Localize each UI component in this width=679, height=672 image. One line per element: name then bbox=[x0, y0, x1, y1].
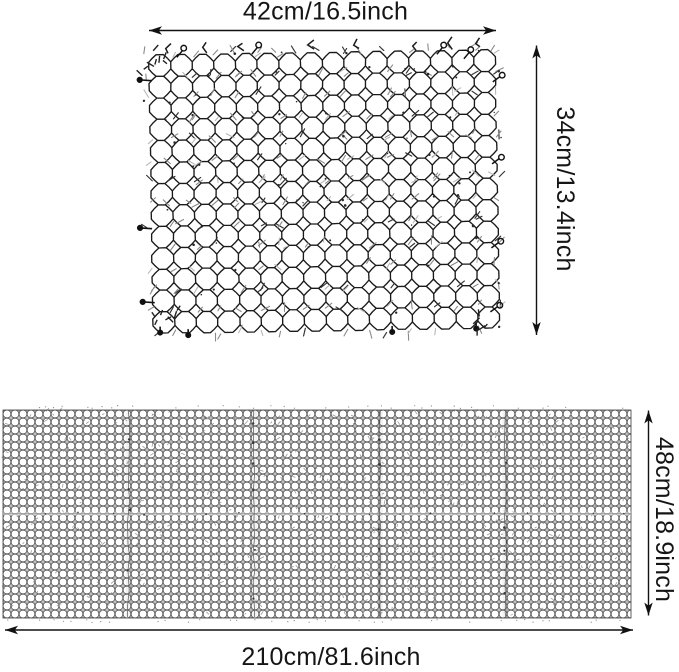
svg-text:42cm/16.5inch: 42cm/16.5inch bbox=[243, 0, 408, 26]
svg-text:210cm/81.6inch: 210cm/81.6inch bbox=[241, 643, 420, 671]
svg-text:34cm/13.4inch: 34cm/13.4inch bbox=[551, 106, 579, 271]
svg-text:48cm/18.9inch: 48cm/18.9inch bbox=[650, 437, 678, 602]
